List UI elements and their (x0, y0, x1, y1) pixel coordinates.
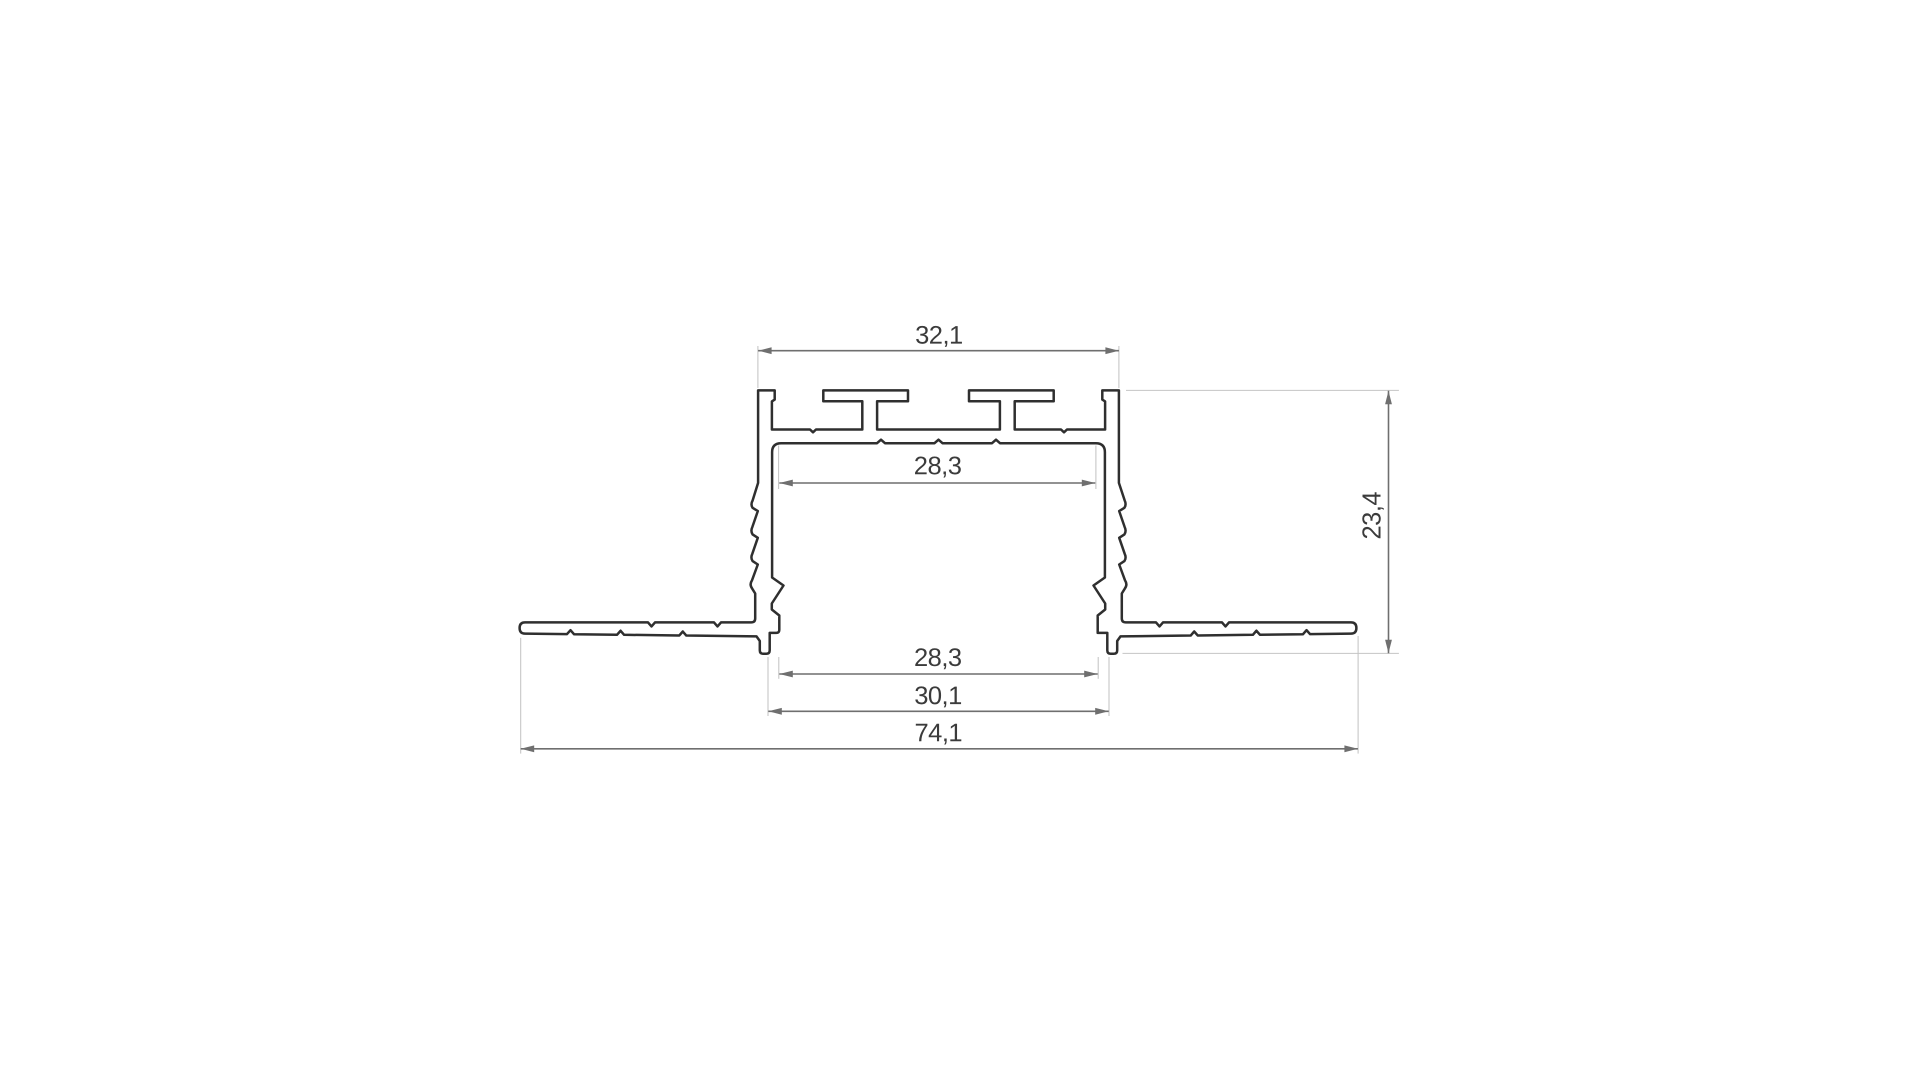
svg-text:32,1: 32,1 (915, 322, 963, 350)
svg-text:23,4: 23,4 (1359, 492, 1387, 540)
svg-text:74,1: 74,1 (914, 719, 962, 747)
svg-text:28,3: 28,3 (914, 644, 962, 672)
svg-text:30,1: 30,1 (914, 682, 962, 710)
svg-text:28,3: 28,3 (914, 452, 962, 480)
